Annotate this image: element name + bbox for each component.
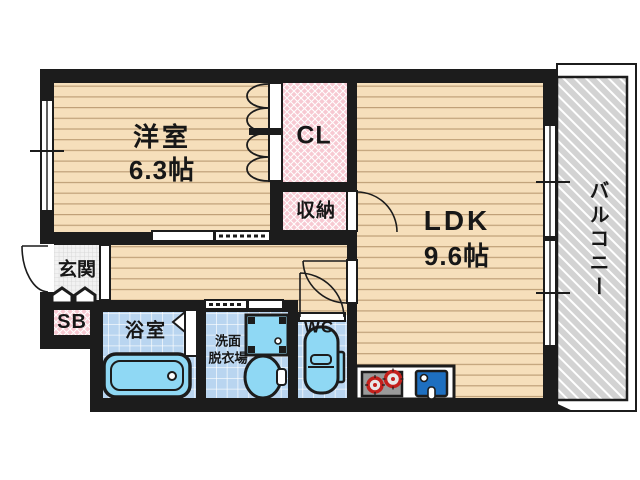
ldk-label: LDK — [424, 207, 491, 235]
toilet-icon — [305, 327, 344, 393]
closet-label: CL — [296, 124, 331, 149]
ldk-size: 9.6帖 — [424, 243, 490, 269]
bathroom-label: 浴室 — [125, 322, 167, 341]
wall-cl-storage — [283, 182, 357, 192]
entrance-label: 玄関 — [58, 261, 96, 280]
kitchen-counter — [356, 366, 454, 399]
storage-label: 収納 — [296, 202, 336, 221]
wall-storage-bottom — [283, 230, 357, 245]
washroom-label-2: 脱衣場 — [208, 352, 247, 365]
washroom-sliding-door — [205, 300, 283, 309]
floor-plan-drawing — [0, 0, 640, 480]
washroom-label-1: 洗面 — [215, 335, 241, 348]
bathtub-icon — [104, 354, 190, 397]
wall-top — [40, 69, 557, 83]
gas-stove-icon — [362, 369, 404, 397]
entrance-step-edge — [100, 245, 110, 300]
shoe-box-label: SB — [57, 312, 87, 332]
western-room-size: 6.3帖 — [129, 157, 195, 183]
western-sliding-door — [152, 231, 270, 241]
wall-center-upper — [347, 69, 357, 190]
western-room-label: 洋室 — [133, 124, 191, 150]
hallway-floor — [103, 245, 347, 300]
wall-center-mid — [347, 230, 357, 260]
washing-machine-pan-icon — [246, 315, 288, 355]
floor-plan: 洋室 6.3帖 CL 収納 LDK 9.6帖 バルコニー 玄関 SB 浴室 洗面… — [0, 0, 640, 480]
kitchen-sink-icon — [416, 371, 447, 399]
balcony-label: バルコニー — [587, 180, 607, 300]
wc-label: WC — [304, 319, 334, 336]
wall-bottom — [90, 398, 575, 412]
